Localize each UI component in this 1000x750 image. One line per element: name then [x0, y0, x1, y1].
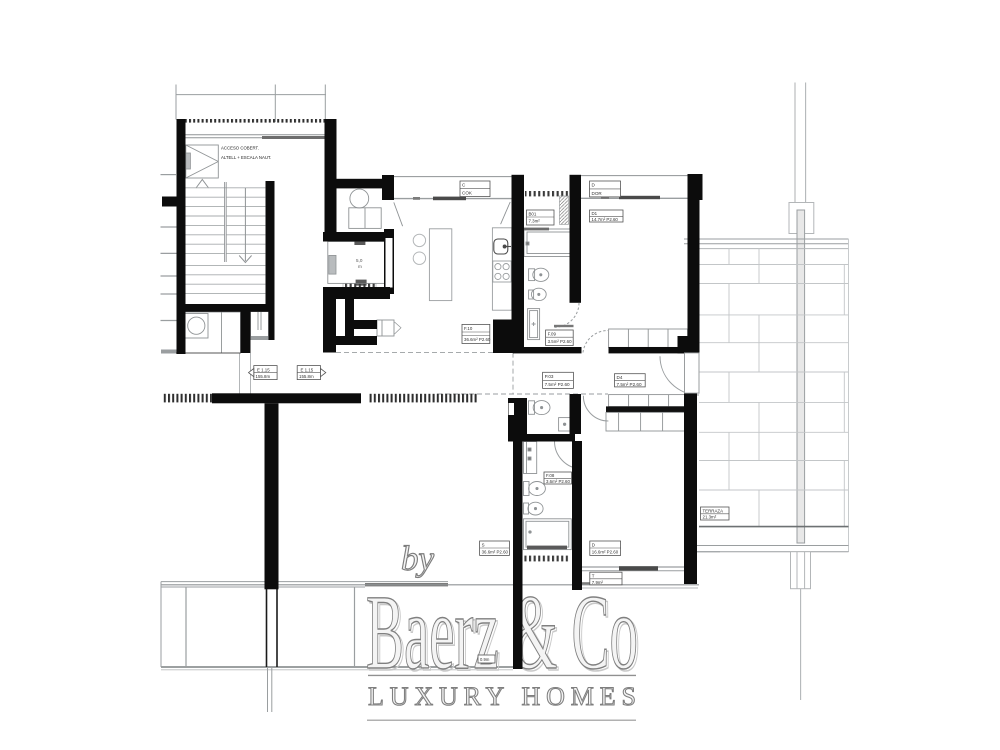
svg-text:T: T [592, 573, 595, 578]
svg-text:36.6m² P2.60: 36.6m² P2.60 [482, 550, 509, 555]
svg-text:COK: COK [462, 191, 473, 196]
svg-text:D: D [592, 542, 595, 547]
svg-text:DOR: DOR [592, 191, 603, 196]
svg-text:P.03: P.03 [545, 374, 554, 379]
svg-text:Baerz & Co: Baerz & Co [366, 574, 638, 692]
svg-text:21.3m²: 21.3m² [703, 515, 717, 520]
svg-text:TERRAZA: TERRAZA [703, 508, 724, 513]
svg-text:D1: D1 [592, 211, 598, 216]
svg-text:0.9m: 0.9m [480, 657, 490, 662]
svg-text:7.5m² P2.60: 7.5m² P2.60 [617, 382, 642, 387]
svg-text:by: by [401, 539, 435, 578]
svg-text:14.7m² P2.60: 14.7m² P2.60 [592, 217, 619, 222]
svg-text:F.10: F.10 [464, 326, 473, 331]
svg-text:16.6m² P2.60: 16.6m² P2.60 [592, 550, 619, 555]
svg-text:S: S [482, 542, 485, 547]
svg-text:155.8m: 155.8m [256, 374, 271, 379]
svg-text:ACCESO COBERT.: ACCESO COBERT. [221, 146, 259, 151]
svg-text:155.8m: 155.8m [299, 374, 314, 379]
svg-text:m: m [358, 264, 362, 269]
svg-text:ALTELL + ESCALA NAUT.: ALTELL + ESCALA NAUT. [221, 155, 271, 160]
svg-text:36.6m² P2.60: 36.6m² P2.60 [464, 337, 491, 342]
svg-text:D4: D4 [617, 375, 623, 380]
svg-text:E 1.15: E 1.15 [257, 368, 270, 373]
svg-text:7.9m²: 7.9m² [592, 580, 604, 585]
svg-text:3.5m² P2.60: 3.5m² P2.60 [548, 339, 572, 344]
svg-text:7.5m² P2.60: 7.5m² P2.60 [545, 382, 570, 387]
svg-text:B01: B01 [529, 211, 537, 216]
svg-text:3.6m² P2.60: 3.6m² P2.60 [546, 479, 570, 484]
svg-text:F.08: F.08 [546, 473, 555, 478]
svg-text:E 1.15: E 1.15 [301, 368, 314, 373]
svg-text:F.09: F.09 [548, 331, 557, 336]
svg-text:7.3m²: 7.3m² [529, 219, 541, 224]
svg-text:5,0: 5,0 [356, 258, 363, 263]
